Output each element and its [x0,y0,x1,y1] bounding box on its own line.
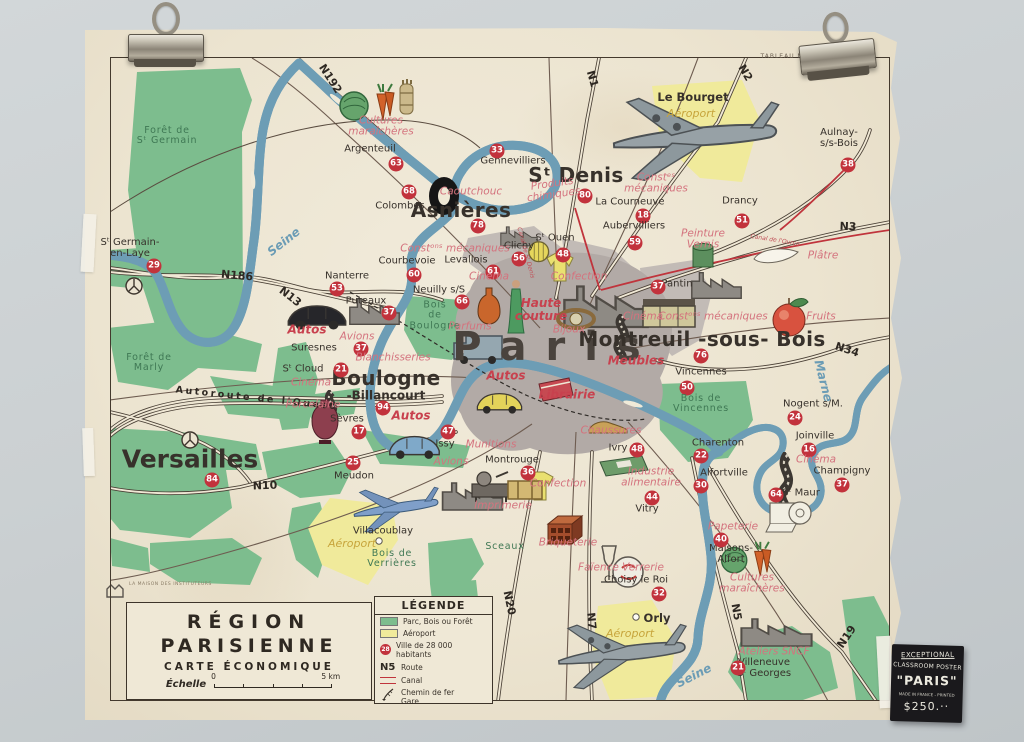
route-symbol: N5 [380,662,396,673]
title-cartouche: RÉGION PARISIENNE CARTE ÉCONOMIQUE Échel… [126,602,372,700]
legend-row-canal: Canal [375,674,492,686]
publisher-name: LA MAISON DES INSTITUTEURS [129,582,212,587]
park-swatch [380,617,398,626]
tape-remnant [82,428,95,476]
legend-canal-label: Canal [401,676,422,685]
scale-label: Échelle [166,679,206,690]
tag-price: $250.·· [890,700,962,713]
clip-lip [134,59,196,67]
legend-airport-label: Aéroport [403,629,436,638]
scale-start: 0 [211,672,216,681]
price-tag: EXCEPTIONAL CLASSROOM POSTER "PARIS" MAD… [890,644,964,723]
airport-swatch [380,629,398,638]
tag-title: "PARIS" [891,673,963,689]
tag-line4: MADE IN FRANCE - PRINTED [891,691,963,698]
map-title-line2: PARISIENNE [127,635,371,657]
legend-box: LÉGENDE Parc, Bois ou Forêt Aéroport 28 … [374,596,493,704]
clip-bar [128,34,204,62]
tag-line1: EXCEPTIONAL [892,651,964,660]
legend-station-label: Gare [401,697,419,706]
population-badge-icon: 28 [380,644,391,655]
legend-park-label: Parc, Bois ou Forêt [403,617,473,626]
legend-railway-label: Chemin de fer [401,688,454,697]
age-stain [515,68,735,188]
canal-symbol-icon [380,677,396,684]
map-title-line1: RÉGION [127,611,371,633]
legend-row-railway: Chemin de fer Gare [375,686,492,707]
clip-ring-icon [152,2,180,36]
legend-row-airport: Aéroport [375,627,492,639]
publisher-imprint: LA MAISON DES INSTITUTEURS [104,582,212,587]
scale-end: 5 km [321,672,340,681]
legend-row-park: Parc, Bois ou Forêt [375,615,492,627]
railway-symbol-icon [380,688,396,702]
legend-title: LÉGENDE [375,597,492,615]
legend-row-route: N5 Route [375,660,492,674]
tag-line2: CLASSROOM POSTER [891,661,963,672]
scale-bar: Échelle 0 5 km [127,679,371,690]
wall: Paris Versailles84Asnières78Sᵗ Denis80Bo… [0,0,1024,742]
legend-row-city: 28 Ville de 28 000 habitants [375,639,492,660]
legend-city-label: Ville de 28 000 habitants [396,641,487,659]
legend-route-label: Route [401,663,423,672]
